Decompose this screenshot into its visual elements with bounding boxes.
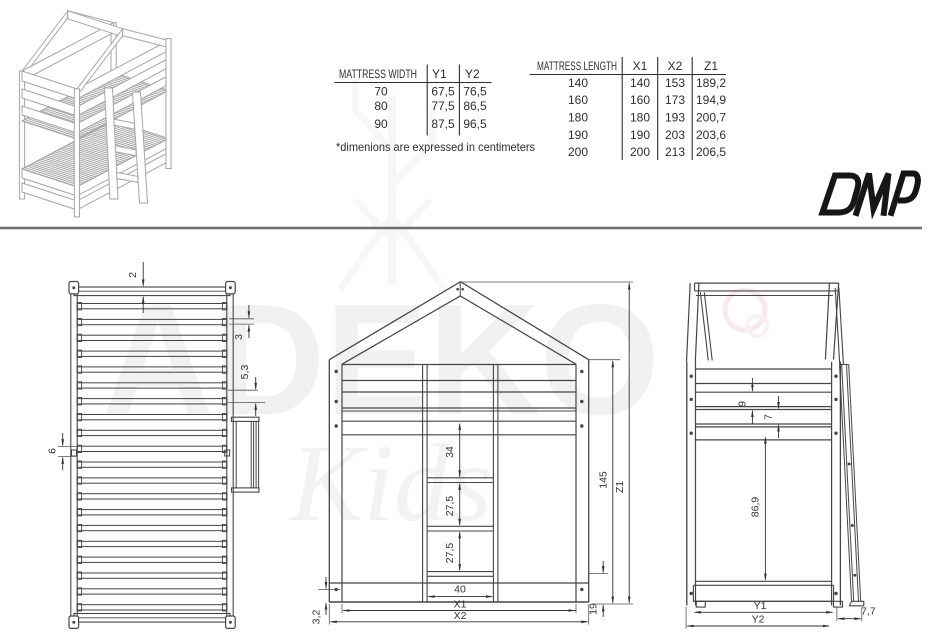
svg-text:193: 193 — [665, 111, 685, 125]
svg-text:7,7: 7,7 — [861, 606, 876, 618]
svg-text:9: 9 — [737, 401, 749, 407]
svg-text:203,6: 203,6 — [696, 128, 726, 142]
svg-text:145: 145 — [598, 471, 610, 489]
svg-text:153: 153 — [665, 76, 685, 90]
svg-text:77,5: 77,5 — [431, 99, 455, 113]
svg-text:86,9: 86,9 — [750, 497, 762, 518]
svg-text:MATTRESS WIDTH: MATTRESS WIDTH — [339, 67, 417, 81]
svg-text:Y1: Y1 — [432, 67, 447, 81]
svg-text:MATTRESS LENGTH: MATTRESS LENGTH — [537, 59, 617, 73]
svg-text:206,5: 206,5 — [696, 145, 726, 159]
svg-text:70: 70 — [374, 85, 388, 99]
svg-text:140: 140 — [568, 76, 588, 90]
svg-text:5,3: 5,3 — [239, 365, 251, 380]
svg-text:200,7: 200,7 — [696, 111, 726, 125]
svg-text:203: 203 — [665, 128, 685, 142]
svg-text:27,5: 27,5 — [444, 543, 456, 564]
svg-text:194,9: 194,9 — [696, 93, 726, 107]
svg-text:X2: X2 — [668, 59, 683, 73]
svg-text:*dimenions are expressed in ce: *dimenions are expressed in centimeters — [336, 140, 535, 154]
svg-text:160: 160 — [568, 93, 588, 107]
svg-text:X1: X1 — [633, 59, 648, 73]
svg-text:96,5: 96,5 — [463, 117, 487, 131]
svg-text:27,5: 27,5 — [444, 496, 456, 517]
svg-text:3: 3 — [233, 334, 245, 340]
svg-text:X2: X2 — [454, 610, 467, 622]
svg-text:7: 7 — [763, 414, 775, 420]
svg-text:160: 160 — [630, 93, 650, 107]
svg-text:3,2: 3,2 — [311, 610, 323, 625]
svg-text:67,5: 67,5 — [431, 85, 455, 99]
svg-text:87,5: 87,5 — [431, 117, 455, 131]
svg-text:6: 6 — [47, 448, 59, 454]
svg-text:80: 80 — [374, 99, 388, 113]
svg-text:213: 213 — [665, 145, 685, 159]
svg-text:190: 190 — [630, 128, 650, 142]
svg-text:90: 90 — [374, 117, 388, 131]
svg-text:Z1: Z1 — [704, 59, 718, 73]
svg-text:Y2: Y2 — [752, 614, 765, 626]
svg-text:140: 140 — [630, 76, 650, 90]
svg-text:190: 190 — [568, 128, 588, 142]
svg-text:2: 2 — [127, 272, 139, 278]
svg-text:34: 34 — [444, 446, 456, 458]
svg-text:189,2: 189,2 — [696, 76, 726, 90]
svg-text:Y1: Y1 — [754, 600, 767, 612]
svg-text:200: 200 — [630, 145, 650, 159]
svg-text:86,5: 86,5 — [463, 99, 487, 113]
svg-text:200: 200 — [568, 145, 588, 159]
svg-text:180: 180 — [568, 111, 588, 125]
svg-text:19: 19 — [588, 603, 600, 615]
svg-text:180: 180 — [630, 111, 650, 125]
svg-text:Y2: Y2 — [465, 67, 480, 81]
svg-text:Z1: Z1 — [614, 481, 626, 493]
svg-text:76,5: 76,5 — [463, 85, 487, 99]
svg-text:X1: X1 — [454, 599, 467, 611]
svg-text:173: 173 — [665, 93, 685, 107]
svg-text:40: 40 — [454, 584, 466, 596]
